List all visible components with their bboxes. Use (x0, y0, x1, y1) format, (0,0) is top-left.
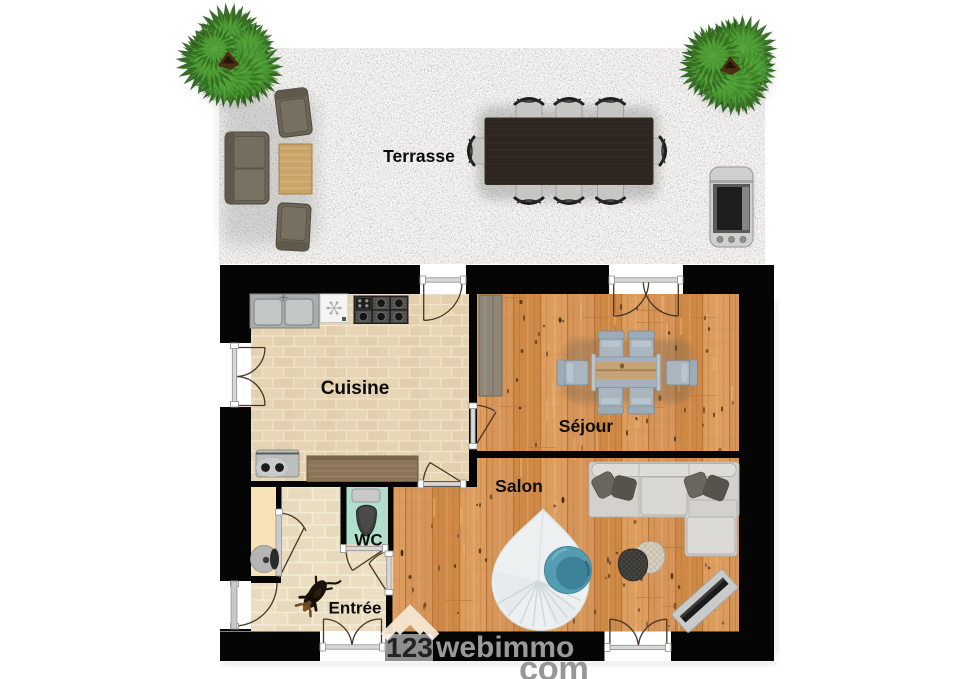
svg-text:WC: WC (354, 531, 382, 550)
svg-text:Entrée: Entrée (329, 599, 382, 618)
svg-text:Terrasse: Terrasse (383, 146, 455, 166)
svg-text:123: 123 (386, 632, 433, 663)
svg-text:Salon: Salon (495, 476, 543, 496)
svg-text:Séjour: Séjour (559, 416, 614, 436)
svg-text:Cuisine: Cuisine (321, 378, 390, 399)
svg-text:com: com (519, 650, 588, 679)
